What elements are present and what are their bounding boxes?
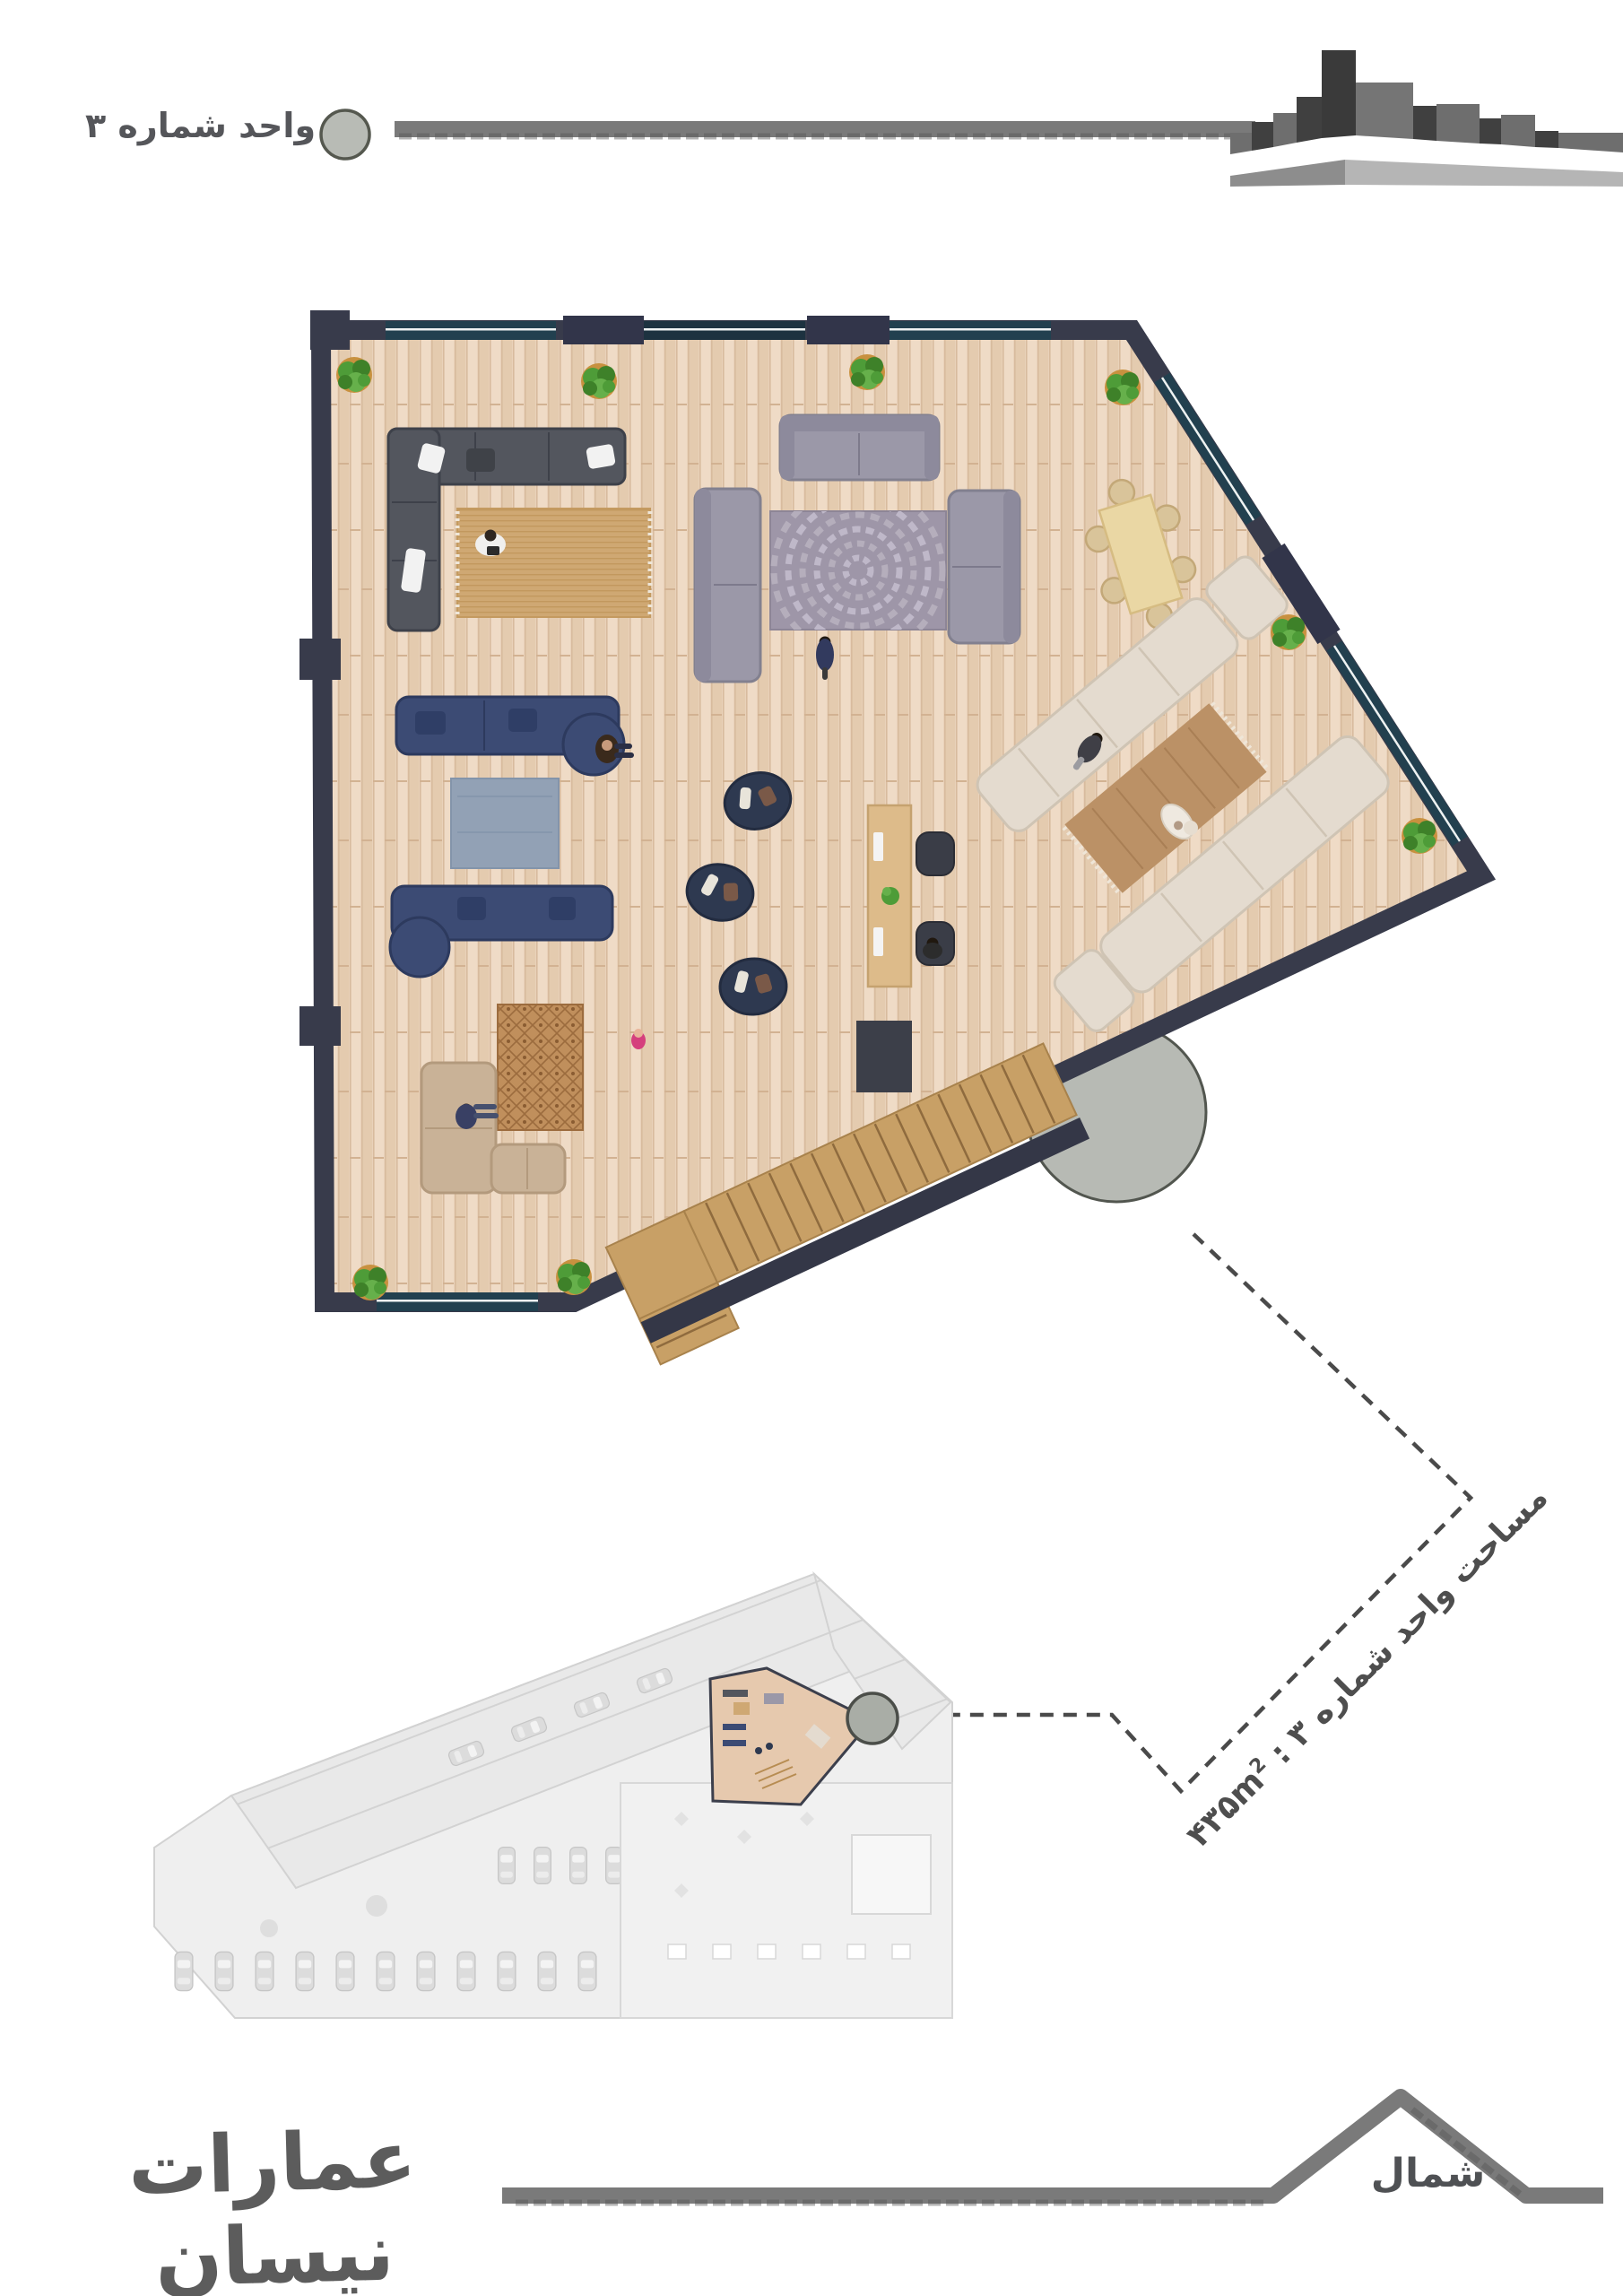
building-massing-sketch-icon [1230,50,1623,187]
plant-icon [849,354,885,390]
plant-icon [556,1259,592,1295]
elevator-landing [856,1021,912,1092]
header-sketch-line [395,129,1255,136]
wall-pillar [299,639,341,680]
unit-plan [299,310,1481,1364]
brand-calligraphy: عمارات نیسان [60,2111,486,2296]
sheet-artwork [0,0,1623,2296]
tan-rug [457,509,650,617]
mini-site-plan [154,1574,952,2018]
window-strip-bottom [377,1292,538,1311]
wall-pillar [310,310,350,350]
presentation-sheet: واحد شماره ۳ مساحت واحد شماره ۳ : ۴۳۵m2 … [0,0,1623,2296]
slate-rug [451,778,559,868]
plant-icon [1105,370,1141,405]
plant-icon [336,357,372,393]
plant-icon [352,1265,388,1300]
gray-sofa-top [780,415,939,480]
mosaic-circle-rug [770,486,946,655]
plant-icon [1402,818,1437,854]
plant-icon [581,363,617,399]
work-desk-2-monitors [868,805,911,987]
page-title-unit-number: واحد شماره ۳ [85,106,318,145]
patterned-rug [498,1004,583,1130]
gray-sofa-left [695,489,760,682]
plant-icon [1271,614,1306,650]
north-label: شمال [1350,2151,1506,2196]
leader-dashed-line [904,1234,1471,1791]
header-circle-marker-icon [321,110,369,159]
courtyard-section [621,1783,952,2018]
mini-circle-marker-icon [847,1693,898,1744]
gray-sofa-right [949,491,1020,643]
wall-pillar [299,1006,341,1046]
